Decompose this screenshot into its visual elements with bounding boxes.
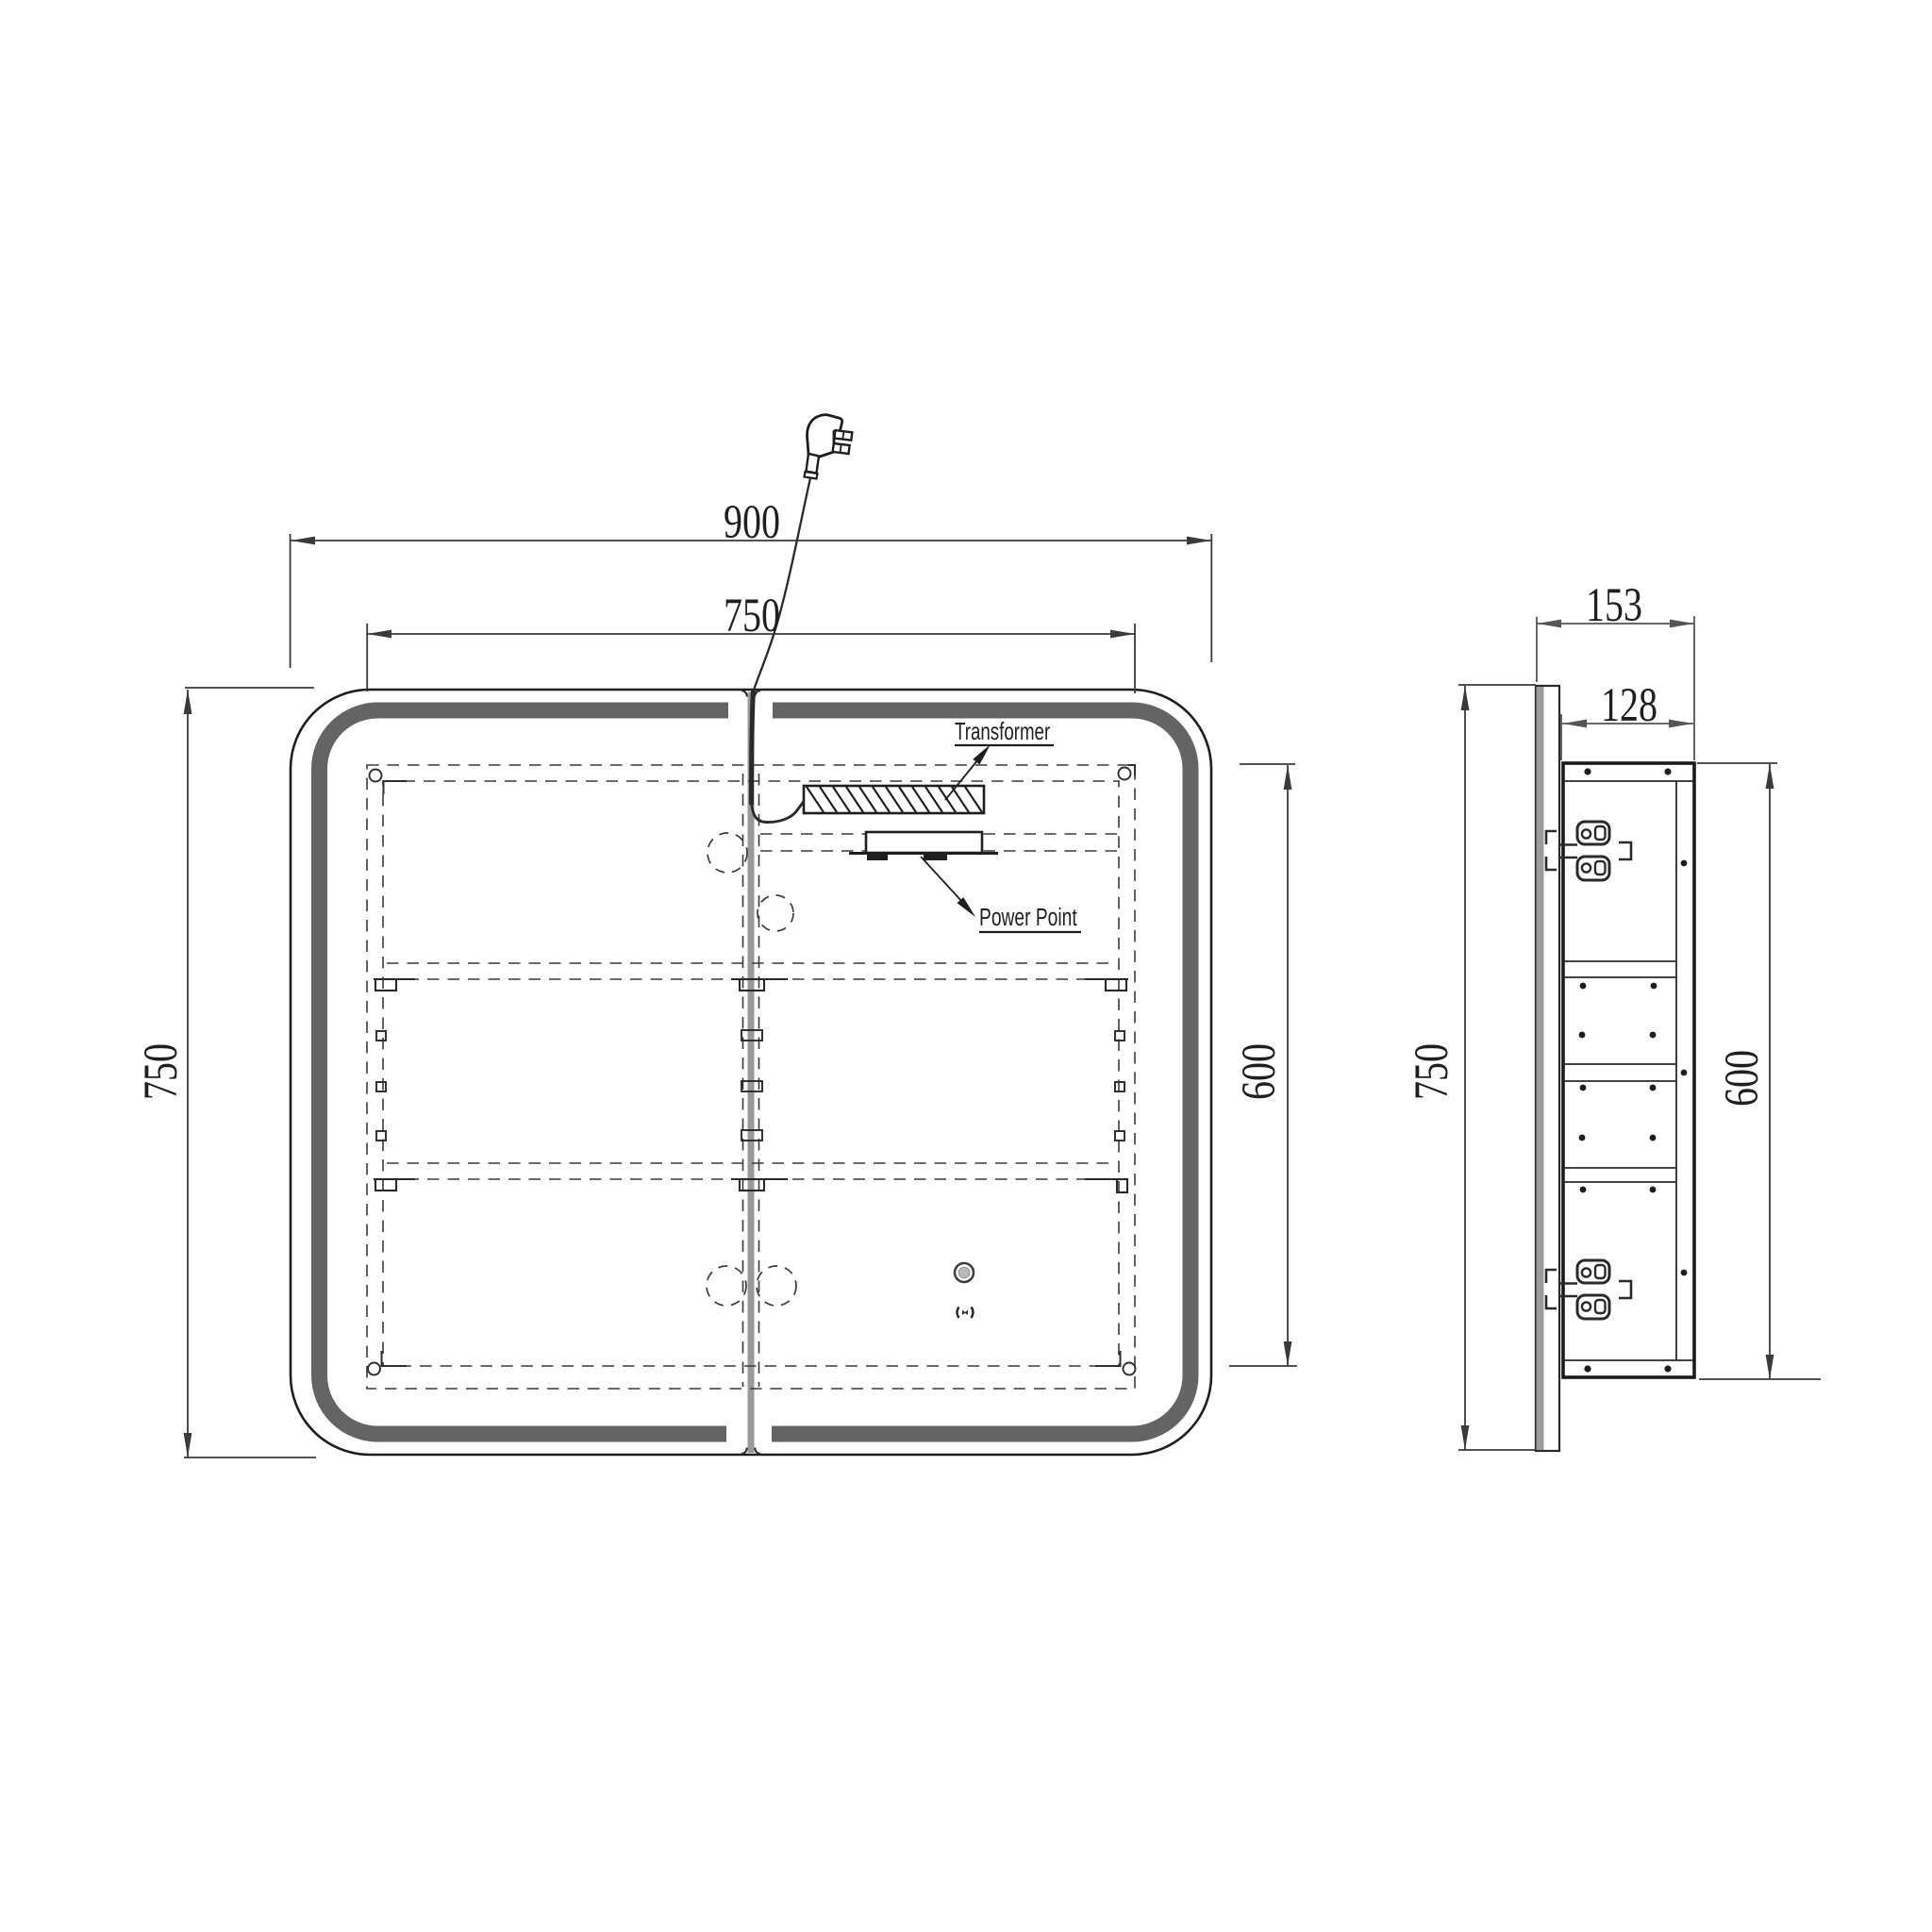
svg-text:900: 900	[724, 494, 780, 548]
svg-text:Transformer: Transformer	[955, 717, 1051, 745]
svg-text:128: 128	[1601, 677, 1657, 731]
svg-text:Power Point: Power Point	[979, 903, 1077, 931]
svg-text:153: 153	[1586, 577, 1642, 631]
svg-text:750: 750	[724, 588, 780, 641]
svg-text:600: 600	[1231, 1043, 1285, 1100]
svg-text:750: 750	[133, 1043, 187, 1100]
svg-text:750: 750	[1404, 1043, 1457, 1100]
svg-text:600: 600	[1714, 1050, 1768, 1107]
